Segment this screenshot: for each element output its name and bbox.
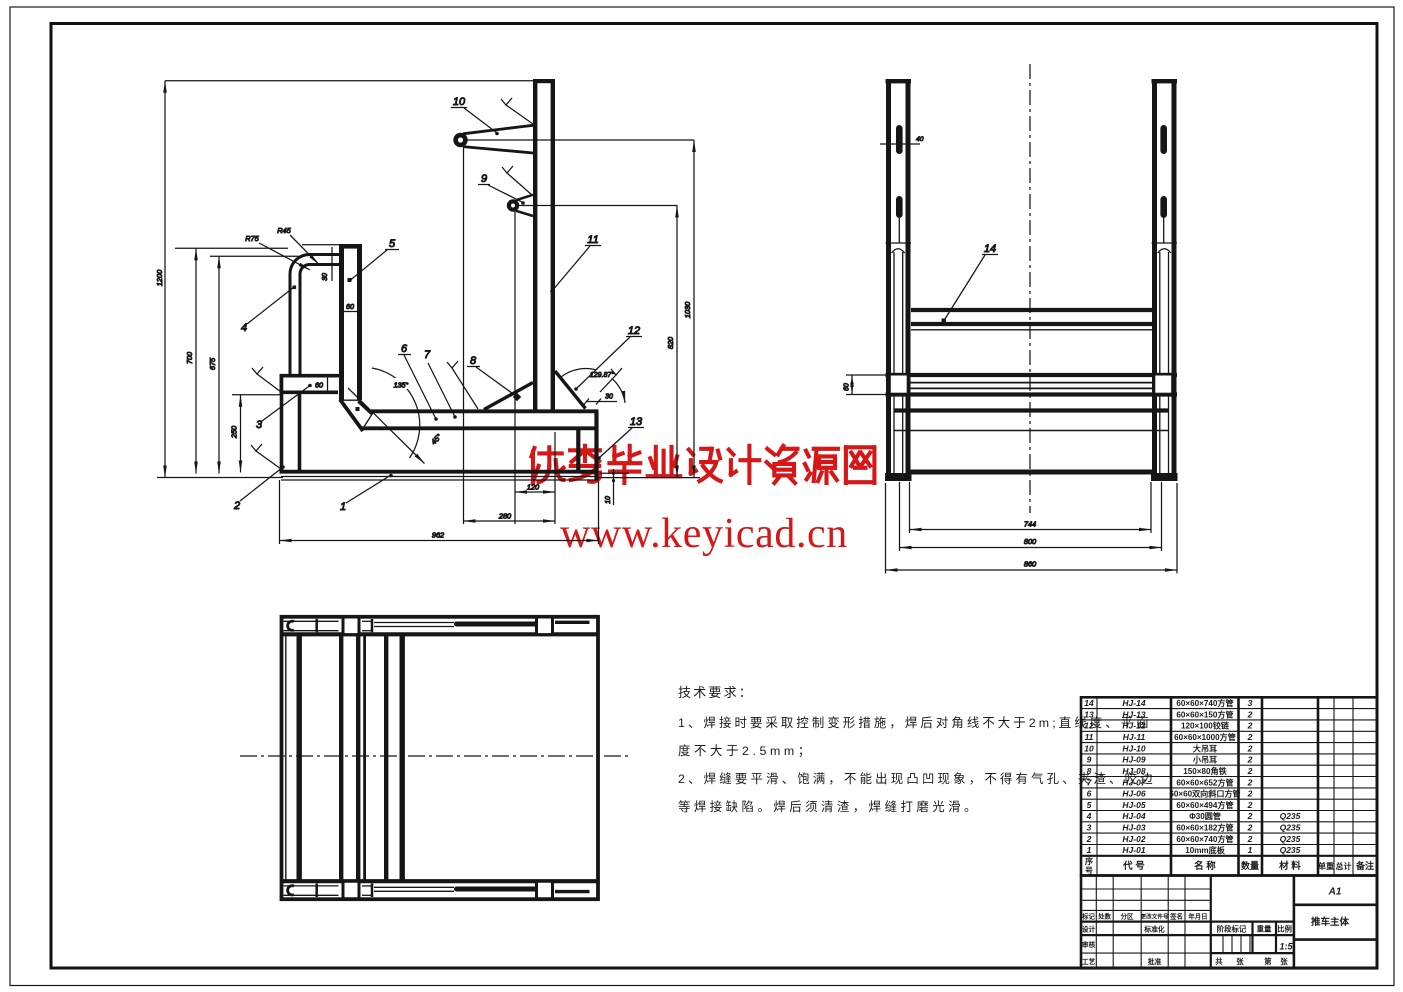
svg-text:2: 2 bbox=[1247, 732, 1253, 742]
svg-text:744: 744 bbox=[1024, 520, 1036, 529]
svg-text:14: 14 bbox=[984, 243, 996, 255]
svg-text:13: 13 bbox=[630, 416, 643, 428]
svg-text:4: 4 bbox=[241, 322, 247, 334]
svg-text:800: 800 bbox=[1024, 537, 1037, 546]
svg-text:10: 10 bbox=[1084, 743, 1094, 753]
svg-text:设计: 设计 bbox=[1082, 925, 1096, 934]
svg-text:280: 280 bbox=[498, 512, 512, 521]
svg-text:60×60×740方管: 60×60×740方管 bbox=[1176, 834, 1233, 844]
svg-text:标准化: 标准化 bbox=[1143, 925, 1165, 934]
svg-text:签名: 签名 bbox=[1169, 911, 1183, 920]
svg-text:重量: 重量 bbox=[1257, 925, 1272, 934]
svg-text:6: 6 bbox=[1087, 789, 1092, 799]
svg-text:8: 8 bbox=[1087, 766, 1092, 776]
svg-text:R45: R45 bbox=[277, 226, 291, 235]
svg-text:150×80角铁: 150×80角铁 bbox=[1183, 766, 1227, 776]
svg-text:2: 2 bbox=[1247, 743, 1253, 753]
svg-text:6: 6 bbox=[401, 343, 408, 355]
svg-text:数量: 数量 bbox=[1241, 860, 1259, 871]
svg-text:11: 11 bbox=[587, 234, 598, 246]
svg-text:1: 1 bbox=[340, 501, 346, 513]
svg-text:HJ-08: HJ-08 bbox=[1122, 766, 1145, 776]
svg-text:Q235: Q235 bbox=[1280, 823, 1301, 833]
svg-text:14: 14 bbox=[1084, 698, 1094, 708]
svg-text:7: 7 bbox=[424, 349, 431, 361]
svg-text:4: 4 bbox=[1086, 811, 1092, 821]
svg-text:2: 2 bbox=[1247, 721, 1253, 731]
svg-text:HJ-01: HJ-01 bbox=[1122, 845, 1145, 855]
svg-text:Q235: Q235 bbox=[1280, 834, 1301, 844]
svg-text:250: 250 bbox=[230, 425, 239, 439]
svg-text:HJ-10: HJ-10 bbox=[1122, 743, 1145, 753]
svg-text:10mm底板: 10mm底板 bbox=[1185, 845, 1225, 855]
svg-text:工艺: 工艺 bbox=[1082, 957, 1096, 966]
svg-text:HJ-03: HJ-03 bbox=[1122, 823, 1145, 833]
svg-text:www.keyicad.cn: www.keyicad.cn bbox=[560, 511, 848, 557]
svg-text:700: 700 bbox=[185, 351, 194, 364]
svg-text:Q235: Q235 bbox=[1280, 811, 1301, 821]
svg-text:675: 675 bbox=[208, 357, 217, 370]
svg-text:更改文件号: 更改文件号 bbox=[1141, 912, 1169, 920]
svg-text:60: 60 bbox=[315, 381, 323, 390]
svg-text:处数: 处数 bbox=[1097, 911, 1111, 920]
svg-text:135°: 135° bbox=[394, 381, 409, 390]
svg-text:2、焊缝要平滑、饱满，不能出现凸凹现象，不得有气孔、夹渣、咬: 2、焊缝要平滑、饱满，不能出现凸凹现象，不得有气孔、夹渣、咬边 bbox=[678, 771, 1156, 786]
svg-text:审核: 审核 bbox=[1082, 940, 1096, 949]
svg-text:9: 9 bbox=[1087, 755, 1092, 765]
svg-text:度不大于2.5mm；: 度不大于2.5mm； bbox=[678, 743, 814, 758]
svg-text:号: 号 bbox=[1085, 866, 1093, 875]
svg-text:2: 2 bbox=[1247, 766, 1253, 776]
svg-text:5: 5 bbox=[1087, 800, 1092, 810]
svg-text:2: 2 bbox=[233, 500, 240, 512]
svg-text:总计: 总计 bbox=[1336, 861, 1352, 871]
svg-text:2: 2 bbox=[1247, 777, 1253, 787]
svg-text:第: 第 bbox=[1264, 957, 1272, 966]
svg-text:比例: 比例 bbox=[1277, 925, 1292, 934]
svg-text:11: 11 bbox=[1085, 732, 1094, 742]
svg-text:推车主体: 推车主体 bbox=[1311, 916, 1350, 928]
svg-text:1: 1 bbox=[1087, 845, 1092, 855]
svg-text:2: 2 bbox=[1247, 800, 1253, 810]
svg-text:HJ-09: HJ-09 bbox=[1122, 755, 1145, 765]
svg-text:1:5: 1:5 bbox=[1279, 942, 1293, 952]
svg-text:HJ-12: HJ-12 bbox=[1122, 721, 1145, 731]
svg-text:60×60×652方管: 60×60×652方管 bbox=[1176, 777, 1233, 787]
svg-text:HJ-05: HJ-05 bbox=[1122, 800, 1145, 810]
svg-text:30: 30 bbox=[322, 273, 329, 281]
svg-text:12: 12 bbox=[628, 325, 640, 337]
svg-text:HJ-02: HJ-02 bbox=[1122, 834, 1145, 844]
svg-text:60×60×182方管: 60×60×182方管 bbox=[1176, 823, 1233, 833]
svg-text:12: 12 bbox=[1084, 721, 1094, 731]
svg-text:分区: 分区 bbox=[1121, 911, 1134, 920]
svg-text:Q235: Q235 bbox=[1280, 845, 1301, 855]
svg-text:60×60×494方管: 60×60×494方管 bbox=[1176, 800, 1233, 810]
svg-text:9: 9 bbox=[481, 173, 487, 185]
svg-text:单重: 单重 bbox=[1318, 861, 1334, 871]
svg-text:材 料: 材 料 bbox=[1278, 860, 1301, 872]
svg-text:序: 序 bbox=[1085, 856, 1093, 866]
svg-text:10: 10 bbox=[453, 96, 466, 108]
svg-text:张: 张 bbox=[1236, 957, 1244, 966]
svg-text:HJ-06: HJ-06 bbox=[1122, 789, 1145, 799]
svg-text:3: 3 bbox=[1087, 823, 1092, 833]
svg-text:R75: R75 bbox=[245, 234, 259, 243]
svg-text:1200: 1200 bbox=[155, 269, 164, 286]
svg-text:60: 60 bbox=[346, 302, 354, 311]
svg-text:2: 2 bbox=[1247, 709, 1253, 719]
svg-text:HJ-14: HJ-14 bbox=[1122, 698, 1145, 708]
svg-text:技术要求：: 技术要求： bbox=[678, 685, 754, 700]
svg-text:批准: 批准 bbox=[1148, 957, 1162, 966]
svg-text:8: 8 bbox=[470, 355, 477, 367]
svg-text:备注: 备注 bbox=[1355, 860, 1374, 871]
svg-text:3: 3 bbox=[1248, 698, 1253, 708]
svg-text:2: 2 bbox=[1247, 789, 1253, 799]
svg-text:年月日: 年月日 bbox=[1188, 911, 1207, 920]
svg-text:30: 30 bbox=[605, 394, 613, 401]
svg-text:HJ-07: HJ-07 bbox=[1122, 777, 1146, 787]
svg-text:HJ-11: HJ-11 bbox=[1123, 732, 1146, 742]
svg-text:共: 共 bbox=[1215, 957, 1223, 966]
svg-text:等焊接缺陷。焊后须清渣，焊缝打磨光滑。: 等焊接缺陷。焊后须清渣，焊缝打磨光滑。 bbox=[678, 799, 980, 814]
svg-text:2: 2 bbox=[1086, 834, 1092, 844]
svg-text:2: 2 bbox=[1247, 823, 1253, 833]
svg-text:1030: 1030 bbox=[683, 301, 692, 318]
svg-text:60×60双向斜口方管: 60×60双向斜口方管 bbox=[1169, 789, 1240, 799]
svg-text:10: 10 bbox=[605, 496, 612, 504]
svg-text:HJ-13: HJ-13 bbox=[1122, 709, 1145, 719]
svg-text:120×100铰链: 120×100铰链 bbox=[1181, 721, 1230, 731]
svg-text:1: 1 bbox=[1248, 845, 1253, 855]
svg-text:阶段标记: 阶段标记 bbox=[1217, 925, 1247, 934]
svg-text:标记: 标记 bbox=[1081, 911, 1095, 920]
svg-text:名 称: 名 称 bbox=[1194, 860, 1216, 872]
svg-text:962: 962 bbox=[432, 531, 444, 540]
svg-text:HJ-04: HJ-04 bbox=[1122, 811, 1145, 821]
svg-text:大吊耳: 大吊耳 bbox=[1193, 743, 1217, 753]
svg-text:860: 860 bbox=[1024, 560, 1037, 569]
svg-text:Φ30圆管: Φ30圆管 bbox=[1189, 811, 1221, 821]
svg-text:120: 120 bbox=[527, 483, 540, 492]
svg-text:40: 40 bbox=[916, 136, 924, 143]
svg-text:2: 2 bbox=[1247, 811, 1253, 821]
svg-text:60×60×1000方管: 60×60×1000方管 bbox=[1174, 732, 1236, 742]
svg-text:小吊耳: 小吊耳 bbox=[1192, 755, 1217, 765]
svg-text:5: 5 bbox=[389, 238, 396, 250]
svg-text:2: 2 bbox=[1247, 755, 1253, 765]
svg-text:2: 2 bbox=[1247, 834, 1253, 844]
svg-text:60×60×740方管: 60×60×740方管 bbox=[1176, 698, 1233, 708]
svg-text:A1: A1 bbox=[1328, 887, 1342, 898]
svg-text:张: 张 bbox=[1280, 957, 1288, 966]
svg-text:820: 820 bbox=[666, 336, 675, 349]
svg-text:13: 13 bbox=[1084, 709, 1094, 719]
svg-text:60: 60 bbox=[844, 383, 851, 391]
svg-text:60×60×150方管: 60×60×150方管 bbox=[1176, 709, 1233, 719]
svg-text:代 号: 代 号 bbox=[1122, 860, 1145, 872]
